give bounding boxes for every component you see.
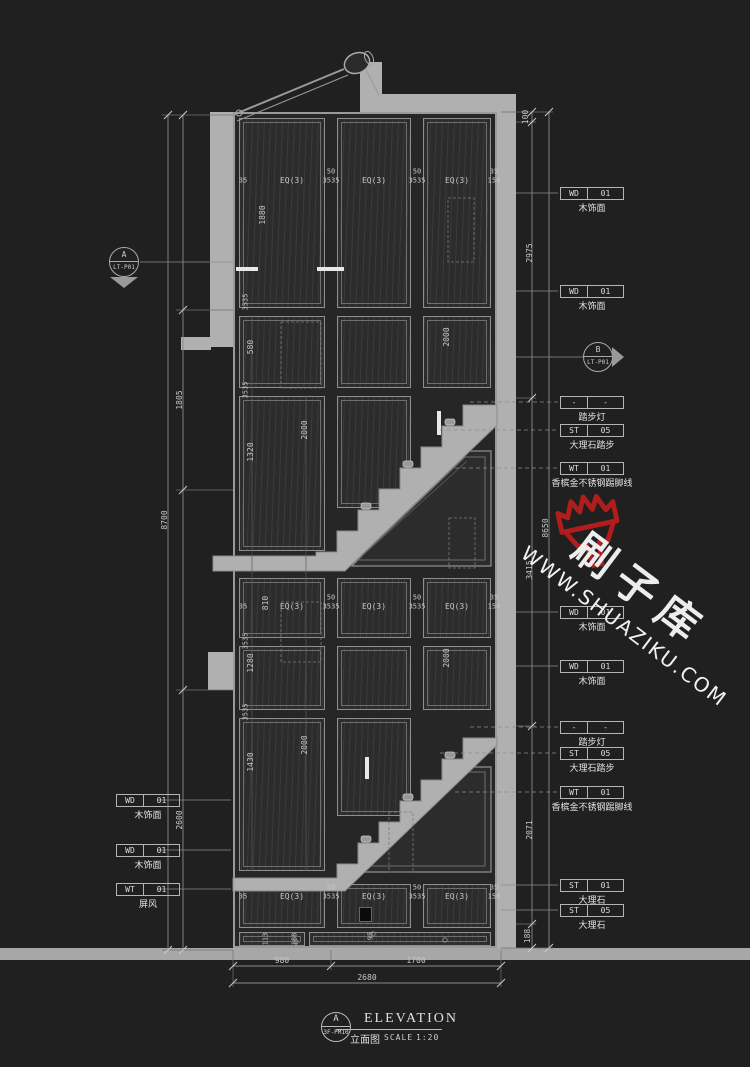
section-code: LT-P01 (584, 357, 612, 369)
section-marker-left: A LT-P01 (109, 247, 139, 277)
tag-box: WT 01 (560, 462, 624, 475)
tag-box: ST 05 (560, 424, 624, 437)
material-tag-x: - - 踏步灯 (560, 721, 660, 748)
material-tag-wt: WT 01 香槟金不锈钢踢脚线 (560, 462, 660, 489)
tag-box: - - (560, 396, 624, 409)
annotation-layer: WD 01 木饰面 WD 01 木饰面 - - 踏步灯 ST 05 大理石踏步 … (0, 0, 750, 1067)
tag-box: ST 01 (560, 879, 624, 892)
material-tag-wd: WD 01 木饰面 (116, 794, 216, 821)
material-tag-wd: WD 01 木饰面 (116, 844, 216, 871)
material-tag-wd: WD 01 木饰面 (560, 187, 660, 214)
material-tag-wd: WD 01 木饰面 (560, 285, 660, 312)
material-tag-st: ST 01 大理石 (560, 879, 660, 906)
tag-box: ST 05 (560, 904, 624, 917)
material-tag-wt: WT 01 香槟金不锈钢踢脚线 (560, 786, 660, 813)
material-tag-x: - - 踏步灯 (560, 396, 660, 423)
section-letter: A (110, 248, 138, 262)
tag-box: WD 01 (560, 187, 624, 200)
tag-box: WD 01 (560, 285, 624, 298)
tag-box: ST 05 (560, 747, 624, 760)
section-marker-right: B LT-P01 (583, 342, 613, 372)
tag-box: WT 01 (116, 883, 180, 896)
elevation-drawing-canvas: A LT-P01 B LT-P01 EQ(3)EQ(3)EQ(3)EQ(3)EQ… (0, 0, 750, 1067)
tag-box: WD 01 (116, 794, 180, 807)
section-code: LT-P01 (110, 262, 138, 274)
material-tag-st: ST 05 大理石 (560, 904, 660, 931)
tag-box: WT 01 (560, 786, 624, 799)
material-tag-st: ST 05 大理石踏步 (560, 747, 660, 774)
tag-box: WD 01 (560, 660, 624, 673)
section-arrow-right-icon (612, 347, 624, 367)
material-tag-wt: WT 01 屏风 (116, 883, 216, 910)
tag-box: WD 01 (116, 844, 180, 857)
section-arrow-down-icon (110, 277, 138, 288)
material-tag-wd: WD 01 木饰面 (560, 660, 660, 687)
material-tag-st: ST 05 大理石踏步 (560, 424, 660, 451)
tag-box: - - (560, 721, 624, 734)
section-letter: B (584, 343, 612, 357)
